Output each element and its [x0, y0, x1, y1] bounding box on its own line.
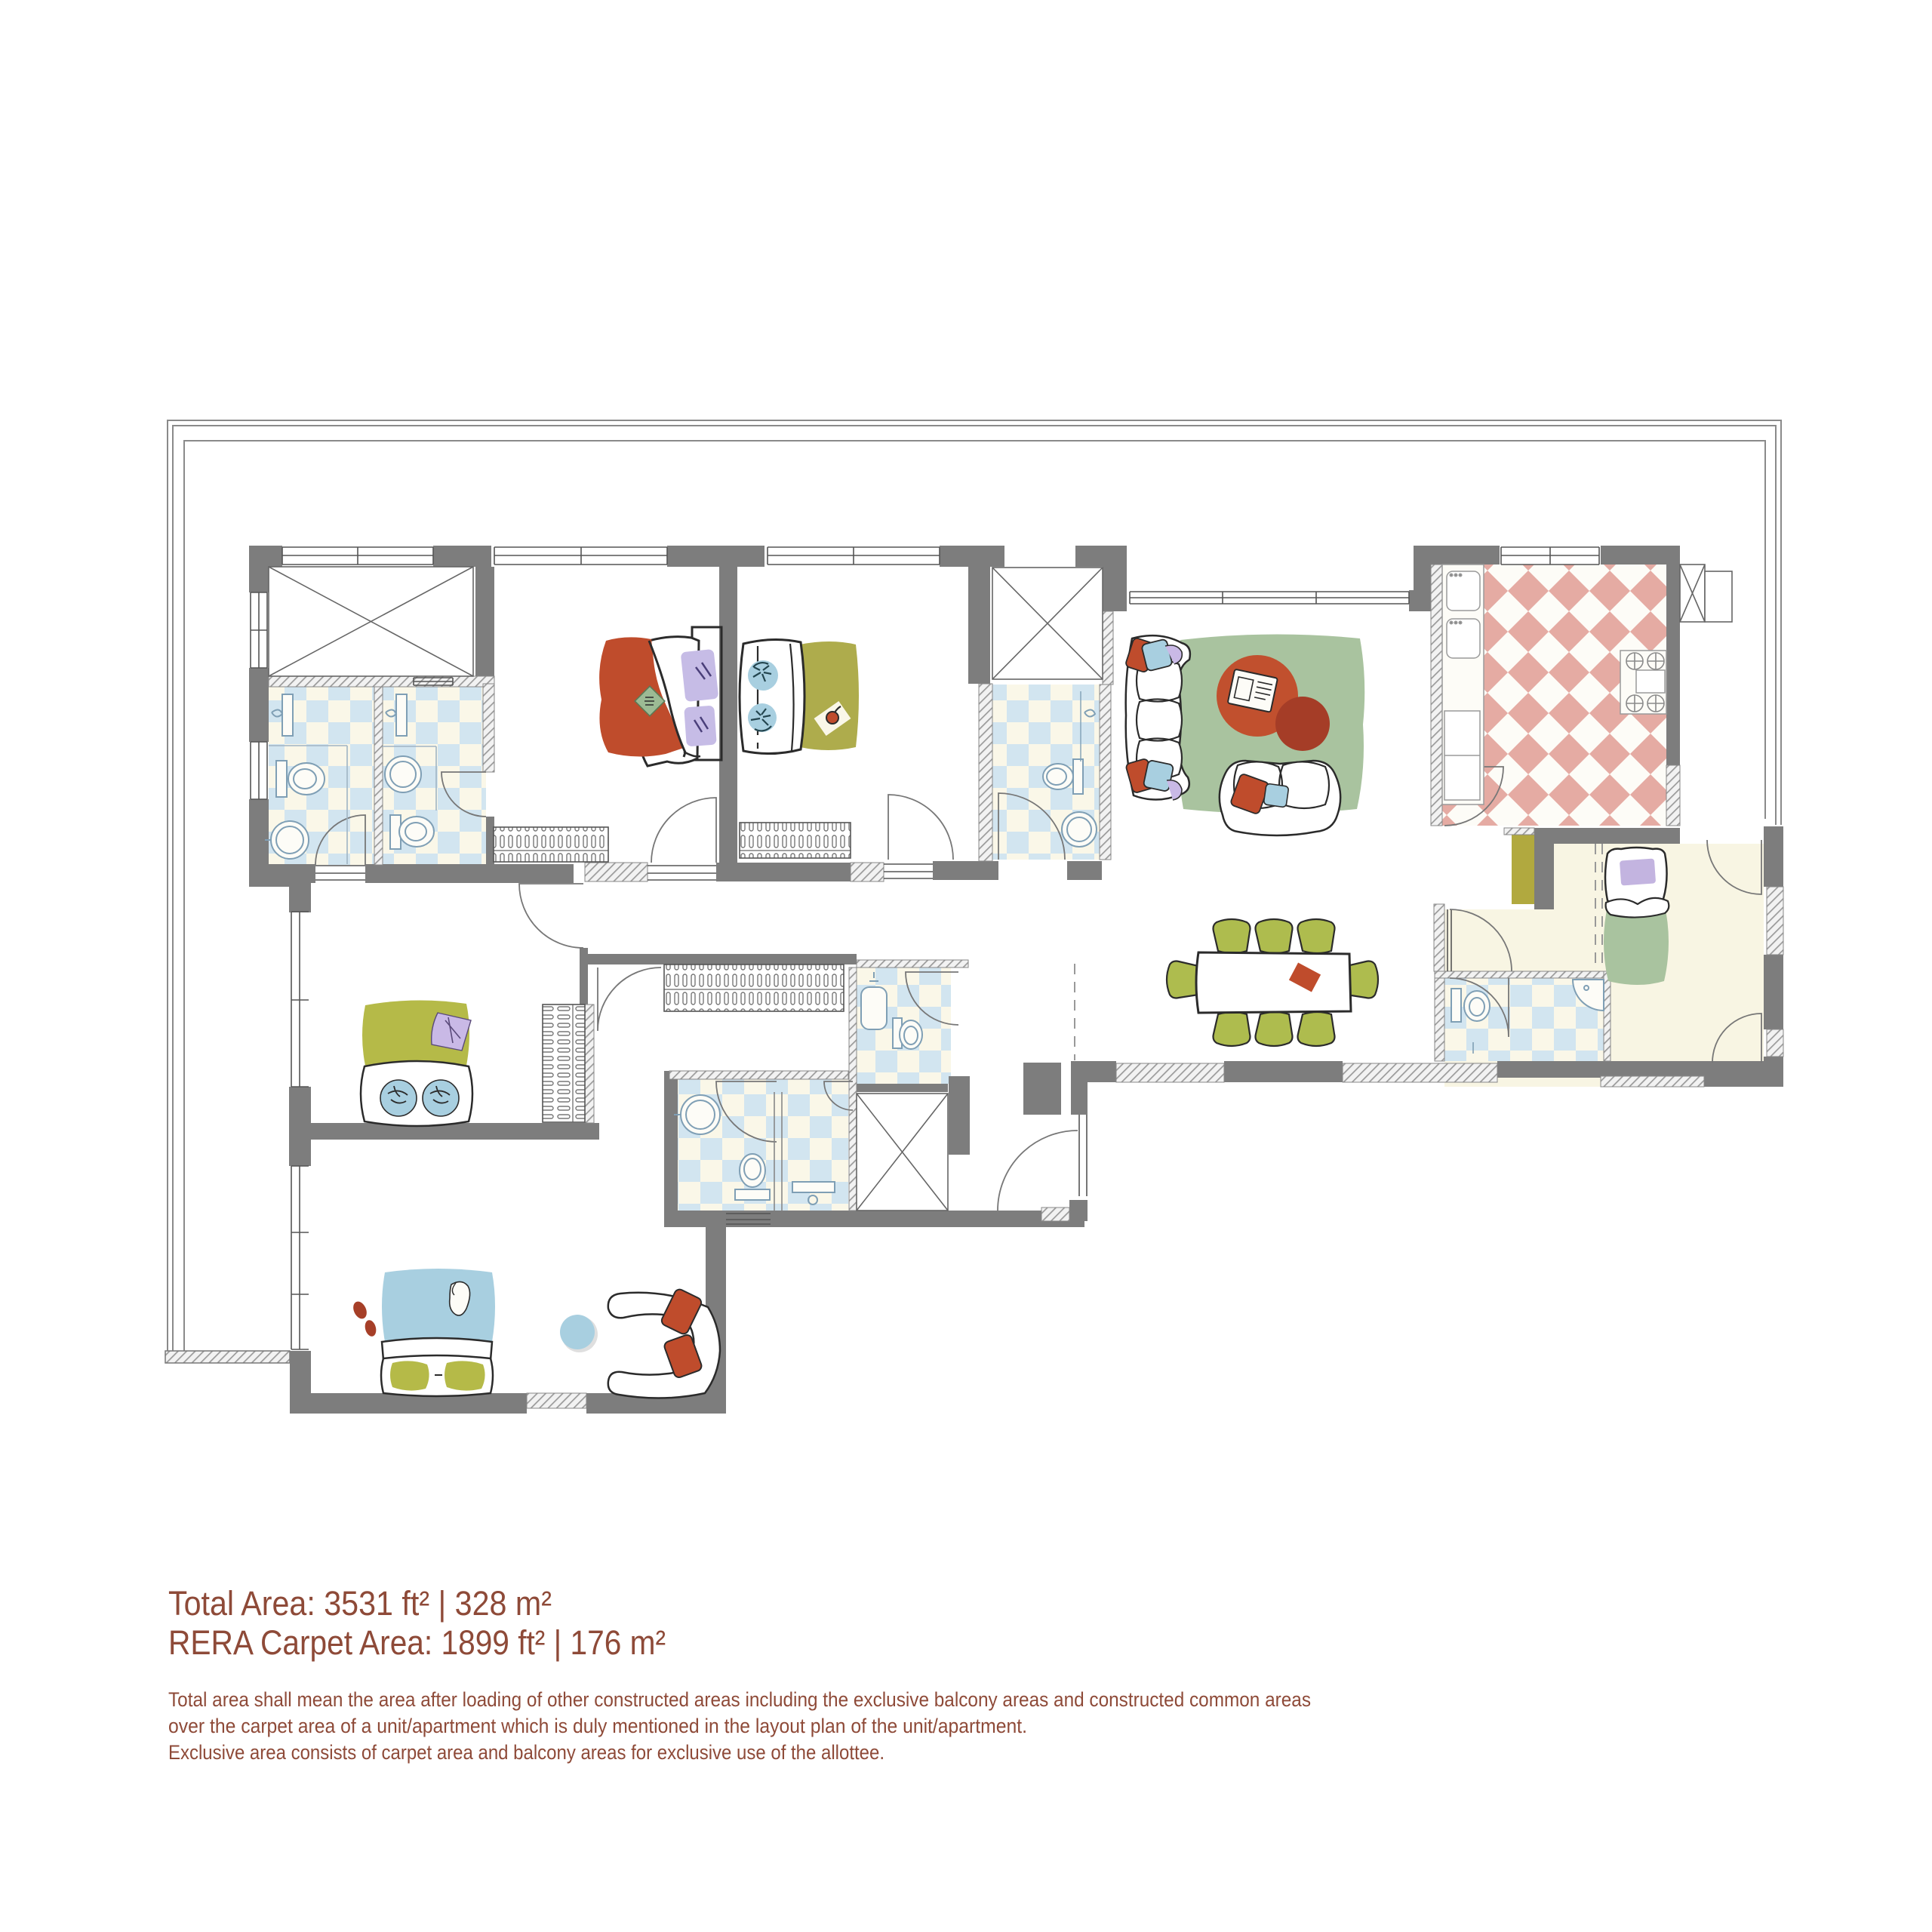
svg-text:Total area shall mean the area: Total area shall mean the area after loa…: [168, 1688, 1311, 1711]
svg-text:Total Area: 3531 ft² | 328 m²: Total Area: 3531 ft² | 328 m²: [168, 1584, 552, 1623]
svg-text:Exclusive area consists of car: Exclusive area consists of carpet area a…: [168, 1741, 884, 1764]
svg-text:over the carpet area of a unit: over the carpet area of a unit/apartment…: [168, 1715, 1027, 1737]
svg-text:RERA Carpet Area: 1899 ft² | 1: RERA Carpet Area: 1899 ft² | 176 m²: [168, 1623, 666, 1662]
